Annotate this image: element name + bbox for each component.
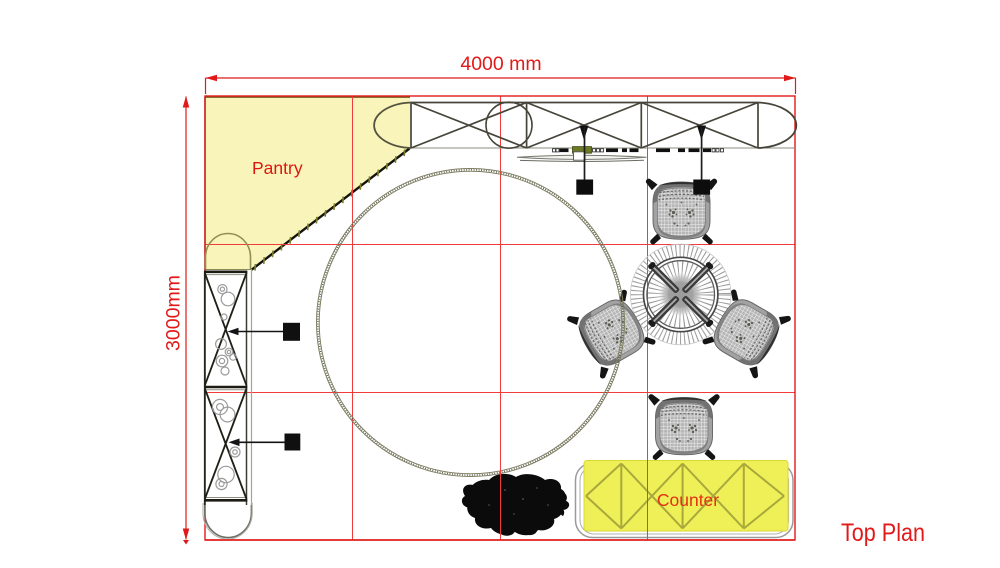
svg-text:3000mm: 3000mm [163,275,185,351]
svg-text:Top Plan: Top Plan [841,519,925,547]
svg-text:Pantry: Pantry [252,158,303,178]
svg-text:Counter: Counter [657,490,719,510]
svg-text:4000 mm: 4000 mm [460,53,541,75]
